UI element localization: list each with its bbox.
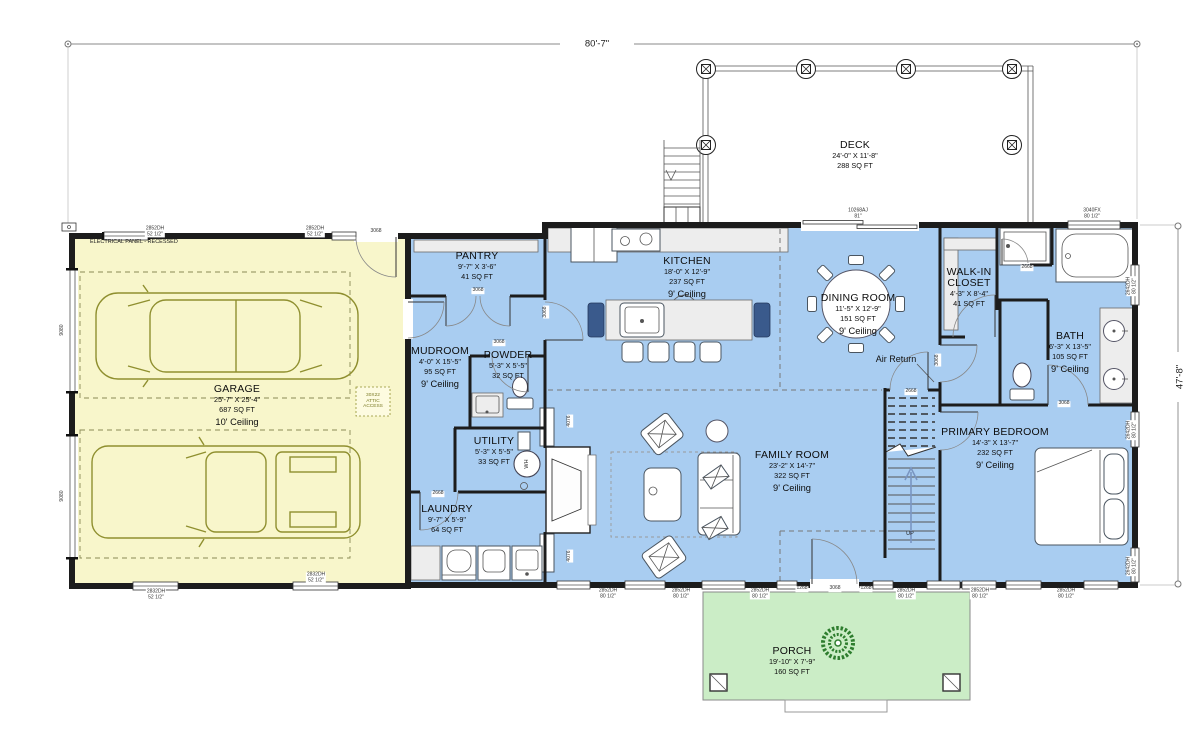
utility-equipment bbox=[518, 432, 530, 450]
island-end-chair bbox=[754, 303, 770, 337]
pantry-shelf bbox=[414, 240, 538, 252]
pillow bbox=[1104, 454, 1124, 494]
sidelite bbox=[777, 581, 797, 589]
floor-plan-drawing bbox=[0, 0, 1200, 752]
electrical-panel-icon bbox=[62, 223, 76, 231]
deck-post bbox=[897, 60, 916, 79]
side-table bbox=[706, 420, 728, 442]
attic-access-box bbox=[356, 387, 390, 416]
window bbox=[1131, 412, 1139, 447]
window bbox=[962, 581, 996, 589]
deck-post bbox=[697, 136, 716, 155]
window bbox=[102, 232, 150, 240]
island-end-chair bbox=[588, 303, 604, 337]
window bbox=[293, 582, 338, 590]
window bbox=[332, 232, 356, 240]
island-stool bbox=[674, 342, 695, 362]
water-heater bbox=[514, 451, 540, 477]
laundry-fixtures bbox=[411, 546, 542, 580]
window bbox=[133, 582, 178, 590]
deck bbox=[664, 60, 1033, 226]
window bbox=[1084, 581, 1118, 589]
island-stool bbox=[648, 342, 669, 362]
floor-plan: DECK24'-0" X 11'-8"288 SQ FTGARAGE25'-7"… bbox=[0, 0, 1200, 752]
window bbox=[1131, 265, 1139, 305]
porch-step bbox=[785, 700, 887, 712]
sidelite bbox=[873, 581, 893, 589]
laundry-cabinet bbox=[411, 546, 440, 580]
window bbox=[557, 581, 590, 589]
window bbox=[1068, 221, 1120, 229]
window bbox=[1006, 581, 1041, 589]
bedroom-fixtures bbox=[1035, 448, 1128, 545]
island-stool bbox=[700, 342, 721, 362]
deck-stairs bbox=[664, 140, 700, 224]
window bbox=[702, 581, 745, 589]
window bbox=[927, 581, 960, 589]
deck-post bbox=[1003, 60, 1022, 79]
pillow bbox=[1104, 499, 1124, 539]
deck-post bbox=[1003, 136, 1022, 155]
window bbox=[625, 581, 665, 589]
window bbox=[1131, 548, 1139, 582]
deck-post bbox=[797, 60, 816, 79]
dining-table bbox=[822, 270, 890, 338]
stair-landing bbox=[664, 207, 700, 224]
cooktop bbox=[612, 229, 660, 251]
coffee-table bbox=[644, 468, 681, 521]
deck-post bbox=[697, 60, 716, 79]
island-stool bbox=[622, 342, 643, 362]
